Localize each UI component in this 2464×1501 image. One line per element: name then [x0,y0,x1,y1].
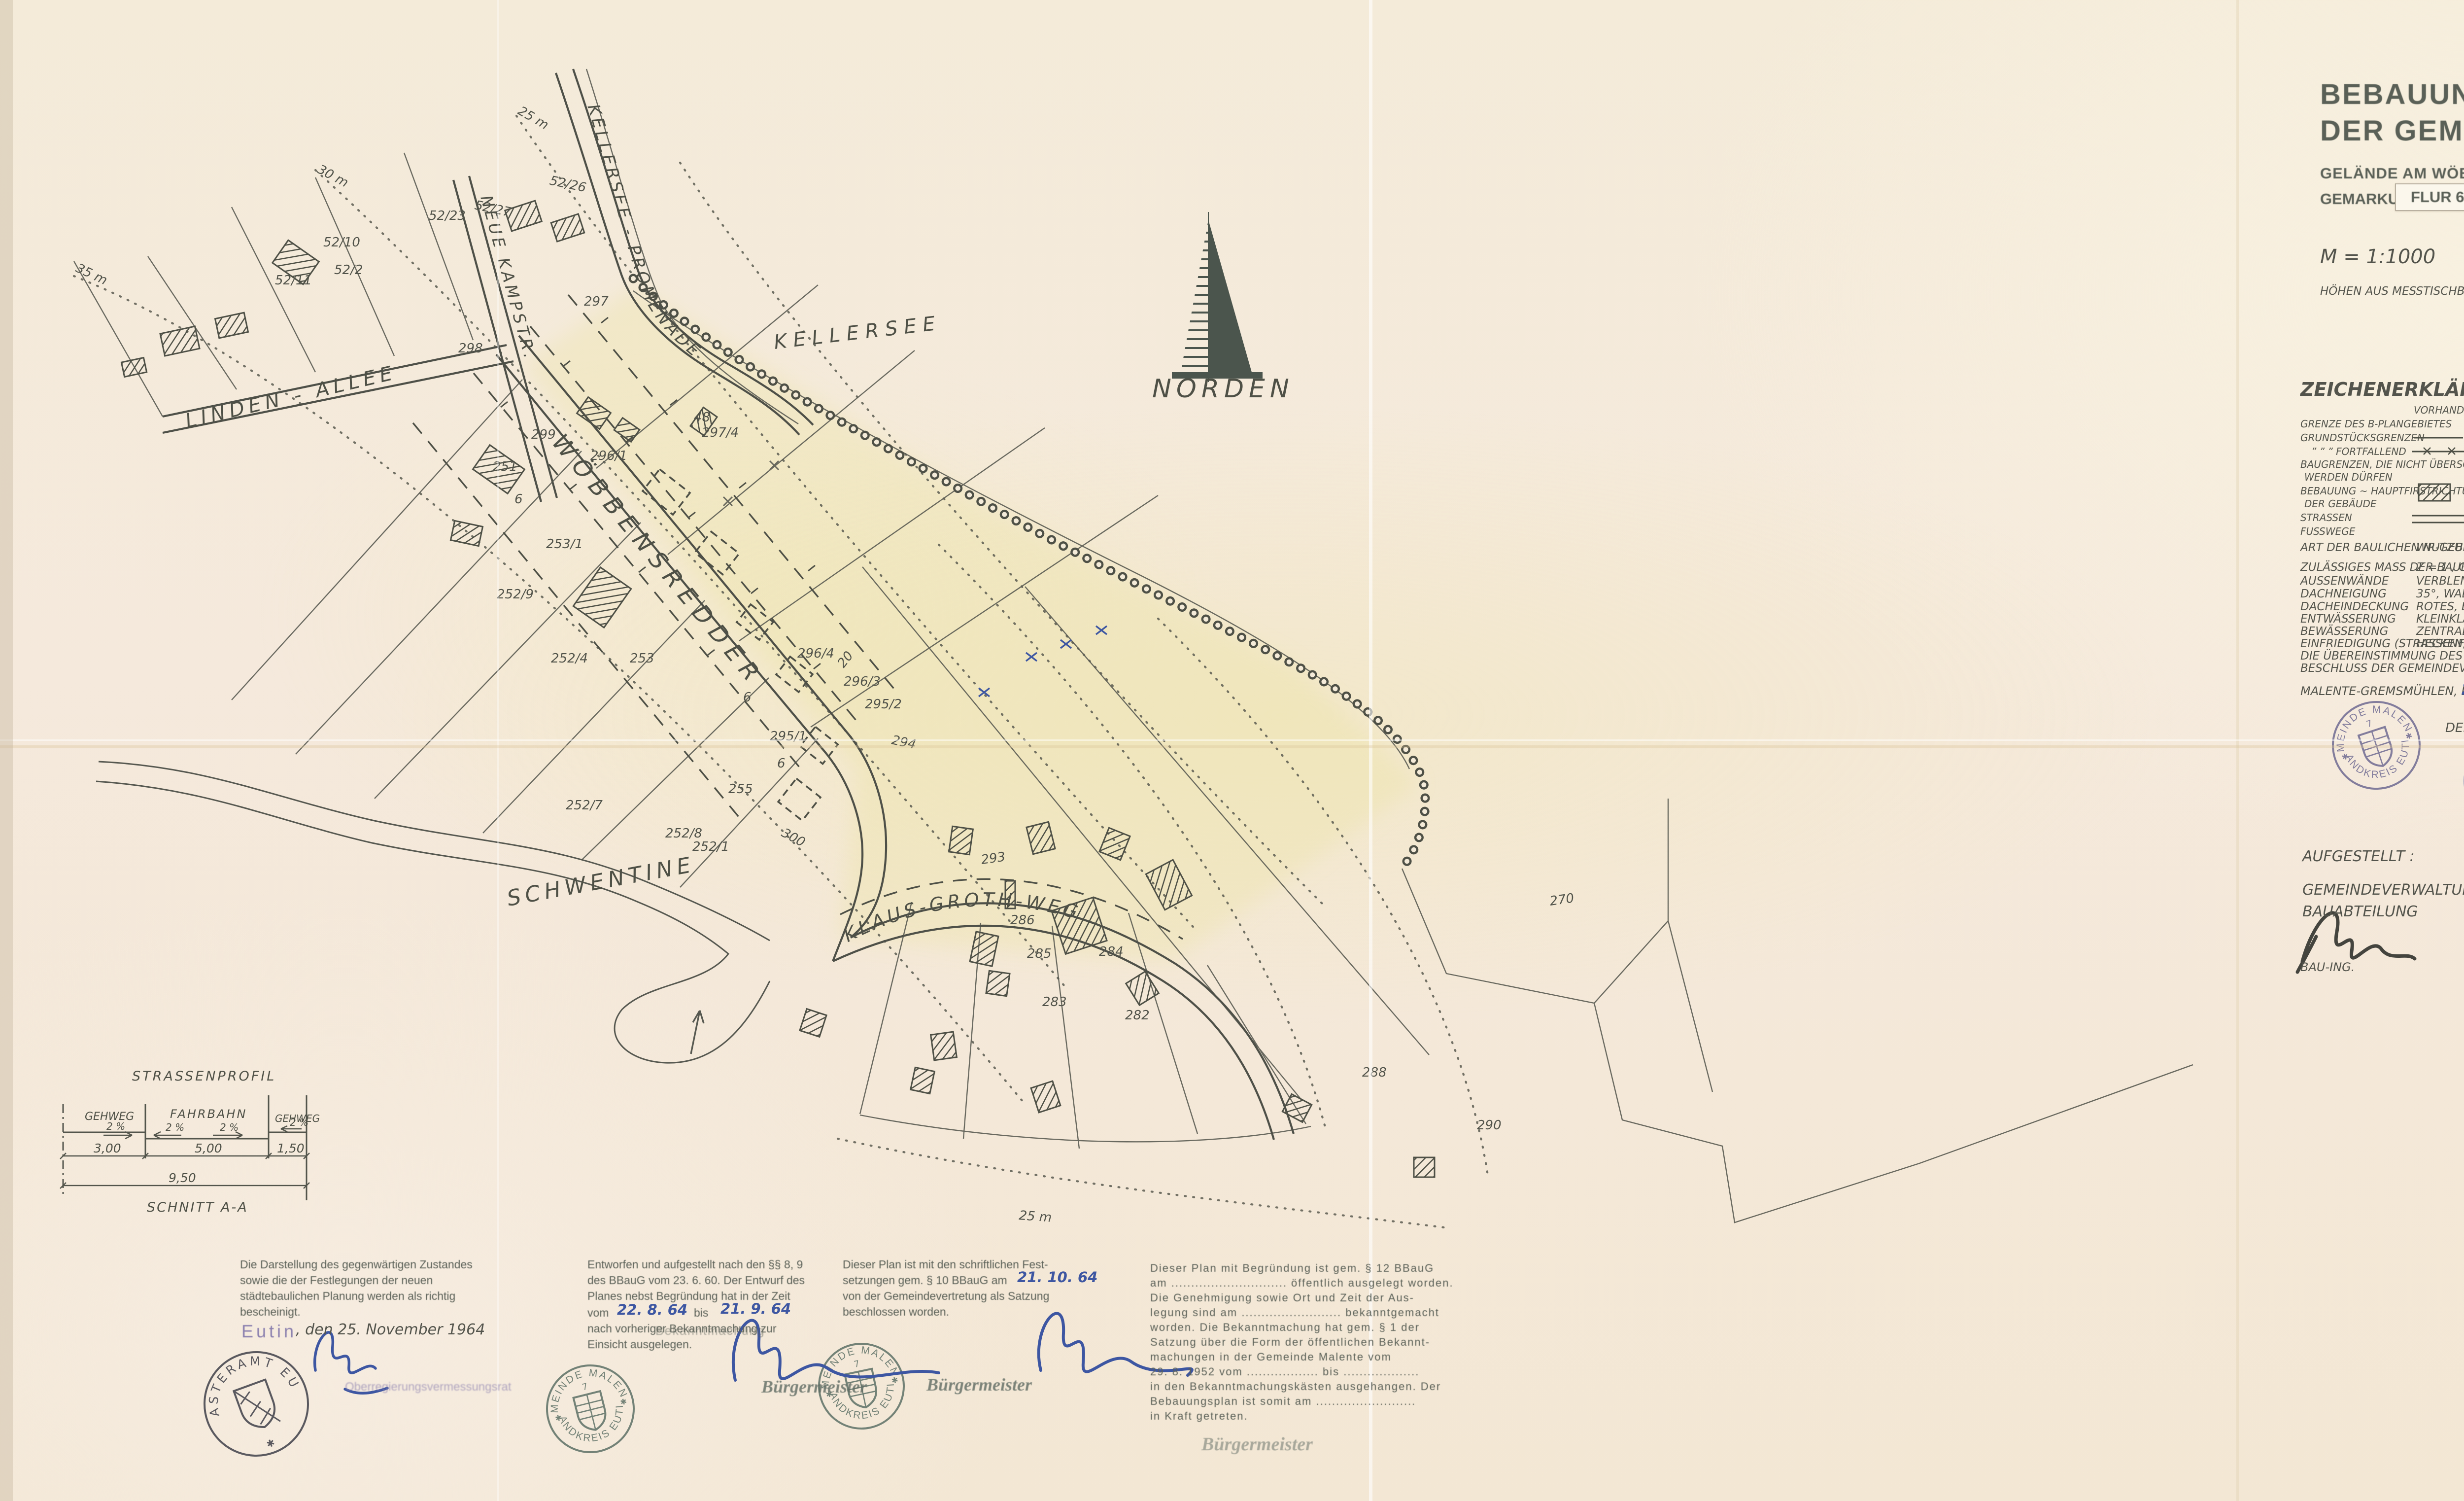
parcel-label: 252/7 [566,798,603,813]
parcel-label: 290 [1477,1118,1502,1133]
nutzung-art-value: WR-GEBIET GEM. § 3 BAUNUTZUNGSVERORDNG. … [2416,541,2464,554]
mayor-title: DER BÜRGERMEISTER [2445,721,2464,735]
parcel-label: 297/4 [702,425,739,440]
profile-section-label: SCHNITT A-A [147,1200,248,1215]
gemeinde-malente-seal: GEMEINDE MALENTE LANDKREIS EUTIN 7 ✱ ✱ [2322,691,2431,800]
profile-slope-3: 2 % [220,1121,239,1133]
flow-arrow-icon [691,1011,704,1054]
plan-title-line1: BEBAUUNGSPLAN NR. 8 [2320,78,2464,111]
parcel-label: 298 [458,341,483,356]
cert1-line2: sowie die der Festlegungen der neuen [240,1274,433,1287]
cert2-date-to: 21. 9. 64 [720,1300,791,1317]
cert4-line2: am ............................. öffentl… [1150,1277,1454,1290]
parcel-label: 52/10 [323,235,360,250]
svg-text:✱: ✱ [265,1436,276,1450]
cert4-footer-stamp: Bürgermeister [1201,1433,1313,1455]
parcel-label: 6 [777,756,786,771]
profile-slope-1: 2 % [106,1120,125,1132]
cert2-title-stamp: Bürgermeister [761,1376,867,1397]
svg-text:✱: ✱ [2340,751,2350,762]
parcel-label: 255 [728,782,753,797]
gemeinde-malente-seal: GEMEINDE MALENTE LANDKREIS EUTIN 7 ✱ ✱ [538,1356,643,1461]
nutzung-neigung-value: 35°, WALMDÄCHER ZUGELASSEN [2416,588,2464,600]
parcel-label: 296/4 [797,646,834,661]
profile-slope-2: 2 % [166,1121,184,1133]
attest-line2: BESCHLUSS DER GEMEINDEVERTRETUNG VOM [2300,662,2464,675]
cert3-date: 21. 10. 64 [1017,1269,1097,1286]
parcel-label: 6 [743,690,752,705]
cert4-line1: Dieser Plan mit Begründung ist gem. § 12… [1150,1262,1434,1275]
parcel-label: 295/1 [770,729,807,744]
nutzung-entwaesserung-value: KLEINKLÄRANLAGEN NACH DIN 4261 M. U-GRUN… [2416,613,2464,626]
parcel-label: 285 [1027,946,1052,961]
parcel-label: 295/2 [865,697,902,712]
aufgestellt-line1: GEMEINDEVERWALTUNG MALENTE [2302,881,2464,899]
nutzung-entwaesserung-label: ENTWÄSSERUNG [2300,613,2396,626]
profile-title: STRASSENPROFIL [132,1069,276,1084]
cert1-line4: bescheinigt. [240,1305,301,1319]
parcel-label: 253/1 [546,537,583,552]
nutzung-wand-value: VERBLENDBAUWEISE, TEILE VERPUTZT BZW. HO… [2416,575,2464,588]
nutzung-deckung-value: ROTES, BRAUNES OD. SCHWARZES PFANNENDACH [2416,600,2464,613]
parcel-label: 296/3 [844,674,881,689]
flur-correction-box: FLUR 6 [2395,183,2464,211]
parcel-label: 270 [1549,891,1575,909]
river-schwentine [96,762,770,1063]
legend-row-fusswege: FUSSWEGE [2300,525,2355,537]
nutzung-wand-label: AUSSENWÄNDE [2300,575,2389,588]
attest-line1: DIE ÜBEREINSTIMMUNG DES PLANES UND DES T… [2300,650,2464,663]
parcel-label: 252/9 [497,587,534,602]
road-neue-kampstr [453,176,557,502]
cert4-line8: 29. 8. 1952 vom .................. bis .… [1150,1365,1419,1378]
contour-label: 35 m [73,261,109,288]
plan-subtitle: GELÄNDE AM WÖBBENSREDDER (GRUNDSTÜCK HIN… [2320,165,2464,182]
profile-dim-total: 9,50 [169,1171,196,1185]
label-kellersee: KELLERSEE [773,312,943,354]
cert1-date-handwritten: , den 25. November 1964 [296,1321,485,1338]
svg-text:7: 7 [2365,718,2373,730]
katasteramt-eutin-seal: KATASTERAMT EUTIN ✱ [190,1337,322,1470]
cert4-line4: legung sind am .........................… [1150,1306,1439,1319]
cert3-title-stamp: Bürgermeister [926,1374,1032,1395]
cert1-line3: städtebaulichen Planung werden als richt… [240,1290,455,1303]
nutzung-bewaesserung-value: ZENTRALE WASSERVERSORGUNG [2416,625,2464,638]
parcel-label: 252/8 [665,826,702,841]
cert2-vom-label: vom [587,1306,609,1320]
parcel-label: 6 [514,492,523,507]
parcel-label: 299 [531,427,556,442]
cert4-line6: Satzung über die Form der öffentlichen B… [1150,1336,1430,1349]
cert4-line10: Bebauungsplan ist somit am .............… [1150,1395,1416,1408]
parcel-label: 284 [1099,944,1124,959]
flur-value: FLUR 6 [2411,188,2464,206]
aufgestellt-heading: AUFGESTELLT : [2302,848,2415,865]
parcel-label: 52/23 [429,209,466,223]
parcel-label: 52/11 [275,273,312,288]
profile-slope-4: 2 % [290,1117,308,1128]
north-arrow-icon [1172,212,1263,382]
legend-heading: ZEICHENERKLÄRUNG : [2300,379,2464,400]
profile-dim-right: 1,50 [277,1141,305,1155]
profile-dim-left: 3,00 [94,1141,121,1155]
cert4-line5: worden. Die Bekanntmachung hat gem. § 1 … [1150,1321,1420,1334]
cert3-line2: setzungen gem. § 10 BBauG am [843,1274,1007,1287]
nutzung-mass-value: Z = 1 , GRZ = 0,4 , GFZ = 0,4 . [2416,561,2464,574]
nutzung-deckung-label: DACHEINDECKUNG [2300,600,2409,613]
cert2-bis-label: bis [694,1306,708,1320]
contour-label: 25 m [515,104,551,133]
legend-row-fortfallend: ” ” ” FORTFALLEND [2311,446,2406,457]
parcel-label: 253 [630,651,654,666]
profile-dim-center: 5,00 [195,1141,222,1155]
parcel-label: 288 [1362,1065,1387,1080]
heights-note: HÖHEN AUS MESSTISCHBLATT 1 : 25000 [2320,285,2464,298]
place-date-label: MALENTE-GREMSMÜHLEN, DEM [2300,684,2464,698]
parcel-label: 252/1 [692,839,729,854]
contour-label: 30 m [315,162,351,191]
cert4-line9: in den Bekanntmachungskästen ausgehangen… [1150,1380,1441,1393]
parcel-label: 297 [584,294,609,309]
parcel-label: 52/2 [334,263,363,278]
cert4-line3: Die Genehmigung sowie Ort und Zeit der A… [1150,1292,1414,1304]
parcel-label: 296/1 [590,449,627,463]
cert4-line7: machungen in der Gemeinde Malente vom [1150,1351,1392,1363]
nutzung-neigung-label: DACHNEIGUNG [2300,588,2387,600]
cert1-place-stamp: Eutin [241,1321,297,1342]
place-date-value: 21. 10. 64 [2462,681,2464,698]
plan-title-line2: DER GEMEINDE MALENTE [2320,114,2464,147]
cert3-line3: von der Gemeindevertretung als Satzung [843,1290,1049,1303]
parcel-label: 251 [493,459,517,474]
parcel-label: 48 [694,410,710,425]
legend-row-strassen: STRASSEN [2300,512,2352,524]
cert2-line5: Einsicht ausgelegen. [587,1338,692,1351]
aufgestellt-signer-title: BAU-ING. [2300,960,2355,974]
legend-row-bebauung-2: DER GEBÄUDE [2304,498,2377,510]
label-schwentine: SCHWENTINE [505,852,697,911]
legend-symbol-street-existing [2412,516,2464,523]
label-linden-allee: LINDEN - ALLEE [183,361,399,433]
legend-symbol-removed-line [2412,448,2464,454]
legend-symbol-building-existing [2419,484,2450,501]
parcel-label: 286 [1010,913,1035,928]
cert2-line2: des BBauG vom 23. 6. 60. Der Entwurf des [587,1274,805,1287]
svg-text:7: 7 [581,1381,589,1393]
street-profile-labels: STRASSENPROFIL GEHWEG FAHRBAHN GEHWEG 2 … [85,1069,320,1215]
cert1-line1: Die Darstellung des gegenwärtigen Zustan… [240,1258,473,1271]
parcel-label: 300 [779,826,808,850]
profile-fahrbahn: FAHRBAHN [170,1107,247,1121]
parcel-label: 282 [1125,1008,1150,1023]
aufgestellt-line2: BAUABTEILUNG [2302,903,2418,920]
nutzung-bewaesserung-label: BEWÄSSERUNG [2300,625,2388,638]
legend-row-baugrenzen-2: WERDEN DÜRFEN [2304,471,2393,483]
cert1-officer-stamp: Oberregierungsvermessungsrat [345,1380,512,1394]
nutzung-einfriedigung-value: HECKEN, SPRIEGEL- OD. LATTENZÄUNE, MAUER… [2416,637,2464,650]
parcel-label: 52/26 [548,174,588,196]
contour-label: 25 m [1019,1208,1053,1225]
cert4-line11: in Kraft getreten. [1150,1410,1248,1423]
parcel-label: 283 [1042,995,1067,1010]
svg-text:7: 7 [853,1359,861,1370]
scanned-development-plan-sheet: { "sheet": { "page_mark": "2" }, "title_… [0,0,2464,1501]
cert3-line4: beschlossen worden. [843,1305,949,1319]
scale-note: M = 1:1000 [2320,245,2435,268]
svg-text:✱: ✱ [890,1375,899,1385]
parcel-label: 252/4 [551,651,588,666]
label-norden: NORDEN [1152,374,1294,404]
cert2-date-from: 22. 8. 64 [617,1301,687,1318]
cert2-overlay-stamp: Bekanntmachung [655,1324,765,1338]
svg-text:✱: ✱ [554,1413,563,1424]
cert2-line1: Entworfen und aufgestellt nach den §§ 8,… [587,1258,803,1271]
